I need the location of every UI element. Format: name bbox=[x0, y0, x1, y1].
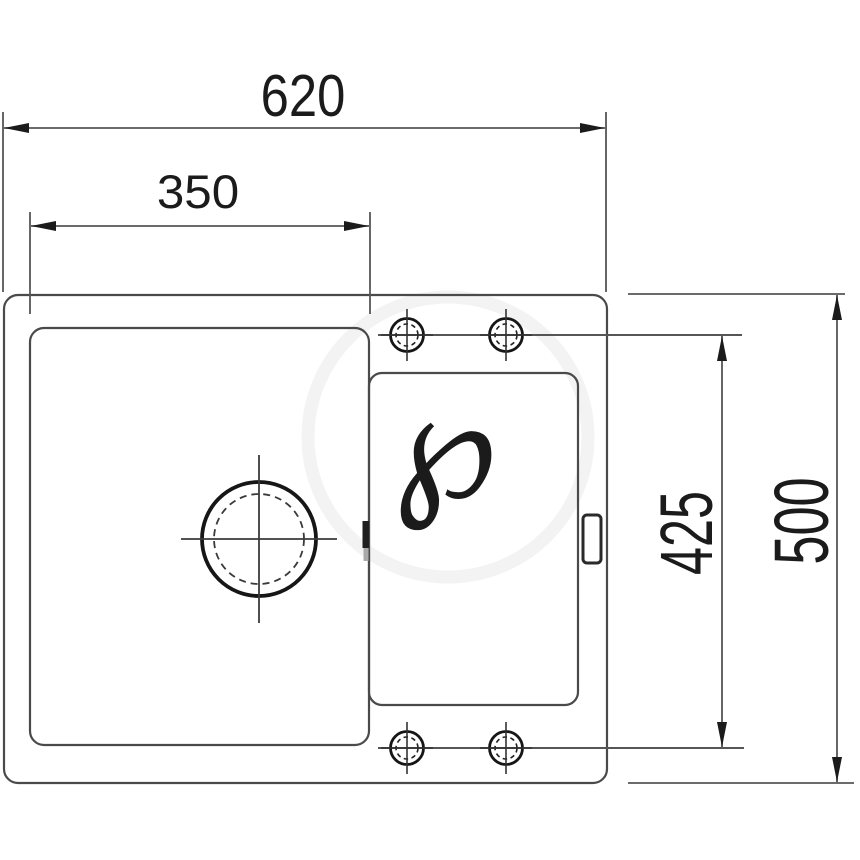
shop-watermark: ℘ bbox=[308, 297, 588, 577]
tap-hole-bottom-right-icon bbox=[480, 722, 532, 774]
dimension-value-620: 620 bbox=[261, 62, 346, 128]
sink-drawing: ℘ bbox=[0, 0, 860, 860]
dimension-value-350: 350 bbox=[157, 166, 239, 219]
dimension-value-425: 425 bbox=[647, 491, 729, 575]
overflow-recess bbox=[583, 515, 601, 563]
watermark-glyph-icon: ℘ bbox=[393, 361, 498, 531]
dimension-overall-width: 620 bbox=[3, 62, 606, 292]
technical-drawing-canvas: ℘ bbox=[0, 0, 860, 860]
dimension-bowl-width: 350 bbox=[30, 166, 370, 314]
tap-hole-bottom-left-icon bbox=[381, 722, 433, 774]
divider-notch-shadow bbox=[364, 548, 369, 561]
dimension-value-500: 500 bbox=[758, 477, 845, 564]
divider-notch bbox=[363, 521, 370, 548]
dimension-tap-hole-span: 425 bbox=[647, 336, 729, 747]
